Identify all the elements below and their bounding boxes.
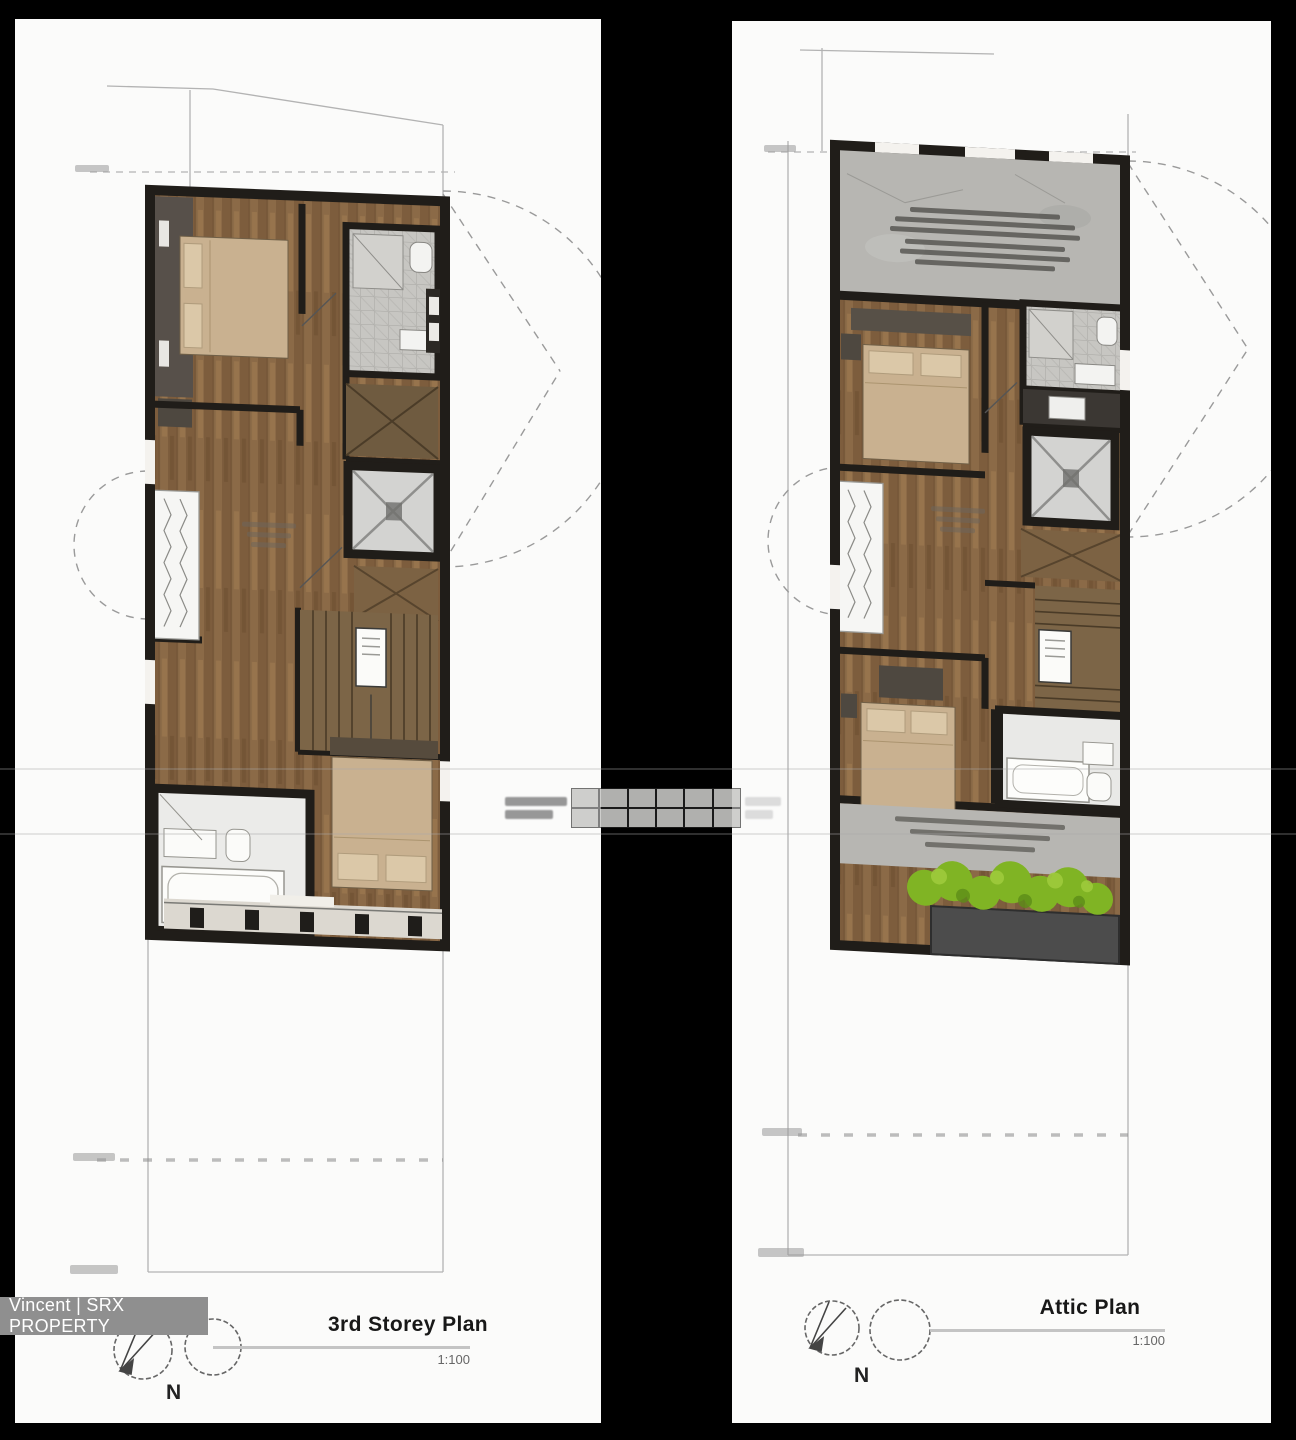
title-rule <box>213 1346 470 1349</box>
scale-bar-right-smudge <box>745 797 781 819</box>
north-compass-icon: N <box>792 1287 952 1397</box>
title-rule <box>930 1329 1165 1332</box>
graphic-scale-bar <box>505 786 793 830</box>
dimension-smudges <box>758 145 804 1257</box>
plan-scale-attic: 1:100 <box>1042 1333 1165 1348</box>
building-attic <box>830 140 1130 965</box>
lift-shaft <box>348 466 438 557</box>
dimension-smudges <box>70 165 118 1274</box>
north-label: N <box>854 1364 869 1387</box>
scale-bar-segments <box>572 789 740 827</box>
vanity-strip <box>1023 389 1125 428</box>
open-wardrobe <box>837 481 883 633</box>
open-wardrobe <box>153 490 199 640</box>
wardrobe-closet <box>346 384 438 460</box>
bathroom-front <box>346 226 442 378</box>
roof-terrace <box>835 145 1125 308</box>
linen-closet <box>1021 529 1123 582</box>
scale-bar-left-smudge <box>505 797 567 819</box>
compass-needle <box>810 1302 846 1351</box>
bedroom-rear <box>330 737 438 891</box>
right-panel: N Attic Plan 1:100 <box>732 21 1271 1423</box>
attic-plan-drawing <box>732 21 1271 1423</box>
plan-title-3rd-storey: 3rd Storey Plan <box>293 1313 523 1337</box>
faint-band-line <box>0 833 1296 835</box>
plan-title-attic: Attic Plan <box>990 1296 1190 1320</box>
third-storey-plan-drawing <box>15 19 601 1423</box>
plan-scale-3rd-storey: 1:100 <box>345 1352 470 1367</box>
faint-band-line <box>0 768 1296 770</box>
watermark-label: Vincent | SRX PROPERTY <box>9 1295 208 1337</box>
left-panel: N 3rd Storey Plan 1:100 <box>15 19 601 1423</box>
lift-shaft <box>1027 431 1115 526</box>
bathroom-lower <box>999 710 1125 811</box>
floor-plan-sheet: N 3rd Storey Plan 1:100 <box>0 0 1296 1440</box>
watermark-badge: Vincent | SRX PROPERTY <box>0 1297 208 1335</box>
bathroom-upper <box>1023 303 1125 394</box>
staircase <box>300 610 438 755</box>
north-label: N <box>166 1381 181 1404</box>
